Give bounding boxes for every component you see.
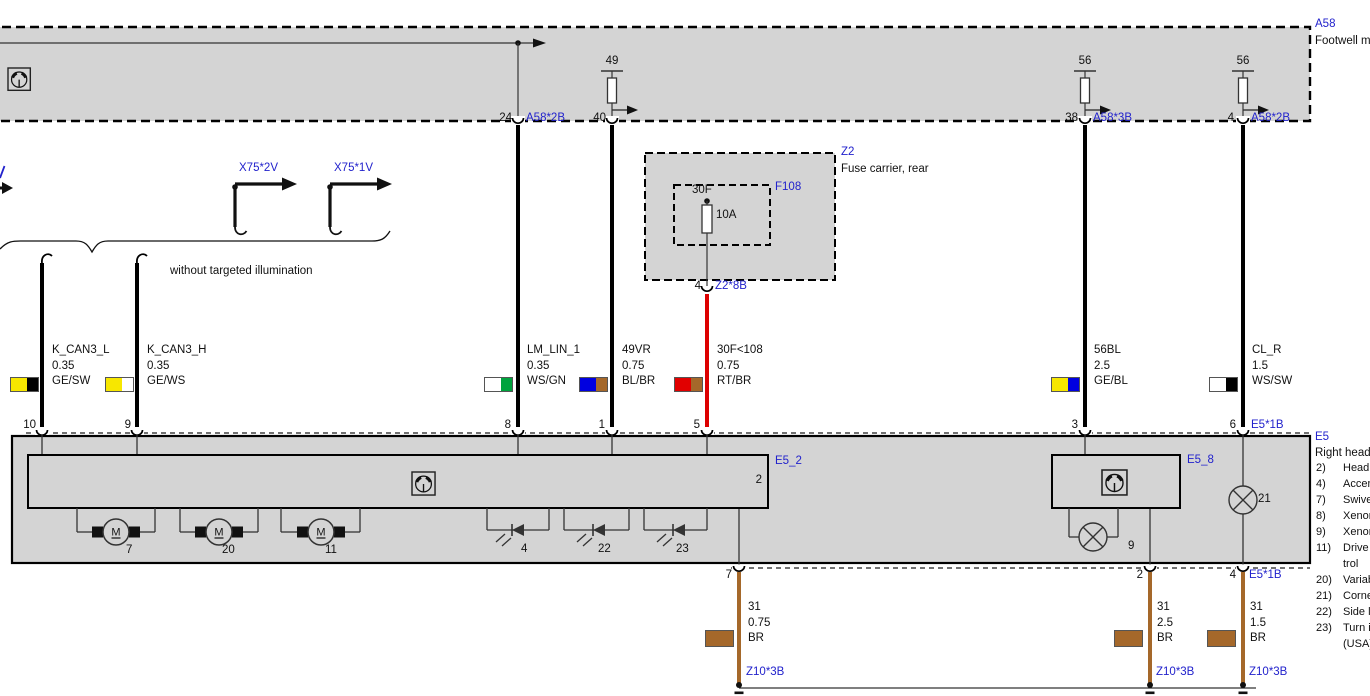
ground-label-3: 311.5BR <box>1250 600 1266 647</box>
z2-fuse-carrier-box <box>645 153 835 280</box>
color-chip-br-1 <box>705 630 734 647</box>
e5-legend-item: 4)Accen <box>1316 479 1370 491</box>
a58-pin-24: 24 <box>494 112 512 124</box>
motor-7-label: 7 <box>126 544 132 556</box>
wire-label-lm-lin-1: LM_LIN_10.35WS/GN <box>527 343 580 390</box>
led-4-label: 4 <box>521 543 527 555</box>
motor-11-label: 11 <box>325 544 337 556</box>
e5-legend-item: 2)Headl <box>1316 463 1370 475</box>
wire-label-k-can3-h: K_CAN3_H0.35GE/WS <box>147 343 206 390</box>
led-22-label: 22 <box>598 543 611 555</box>
e5-legend-item: 9)Xenon <box>1316 527 1370 539</box>
ground-stud-3: Z10*3B <box>1249 666 1287 678</box>
e5-name-label: Right head <box>1315 447 1370 459</box>
e5-2-pin-2: 2 <box>744 474 762 486</box>
color-chip-br-2 <box>1114 630 1143 647</box>
fuse-terminal-30f: 30F <box>692 184 712 196</box>
grouping-brace <box>0 231 390 252</box>
e5-pin-5: 5 <box>682 419 700 431</box>
lamp-symbol-9 <box>1079 523 1107 551</box>
a58-pin-38-connector: A58*3B <box>1093 112 1132 124</box>
terminal-56-right-label: 56 <box>1229 55 1257 67</box>
wire-k-can3-h <box>137 254 147 430</box>
e5-8-box <box>1052 455 1180 508</box>
color-chip-ws-gn <box>484 377 513 392</box>
e5-bottom-connector-label: E5*1B <box>1249 569 1282 581</box>
e5-legend-item: 20)Variab <box>1316 575 1370 587</box>
e5-legend-item: 23)Turn i <box>1316 623 1370 635</box>
color-chip-ge-bl <box>1051 377 1080 392</box>
ground-label-2: 312.5BR <box>1157 600 1173 647</box>
e5-legend-item: 21)Corne <box>1316 591 1370 603</box>
e5-legend-item: (USA) <box>1316 639 1370 651</box>
z2-pin-connector: Z2*8B <box>715 280 747 292</box>
e5-legend-item: 22)Side li <box>1316 607 1370 619</box>
ground-label-1: 310.75BR <box>748 600 770 647</box>
ground-stud-1: Z10*3B <box>746 666 784 678</box>
e5-2-id-label: E5_2 <box>775 455 802 467</box>
e5-pin-1: 1 <box>587 419 605 431</box>
e5-legend-item: trol <box>1316 559 1370 571</box>
terminal-49-label: 49 <box>598 55 626 67</box>
wire-label-cl-r: CL_R1.5WS/SW <box>1252 343 1292 390</box>
z2-id-label: Z2 <box>841 146 854 158</box>
e5-2-box <box>28 455 768 508</box>
e5-pin-10: 10 <box>18 419 36 431</box>
terminal-56-left-label: 56 <box>1071 55 1099 67</box>
z2-name-label: Fuse carrier, rear <box>841 163 929 175</box>
wire-label-30f108: 30F<1080.75RT/BR <box>717 343 763 390</box>
e5-legend-item: 11)Drive u <box>1316 543 1370 555</box>
left-branch-arrow <box>0 166 13 194</box>
x75-1v-branch-arrow <box>327 178 392 235</box>
a58-pin-4: 4 <box>1216 112 1234 124</box>
a58-id-label: A58 <box>1315 18 1335 30</box>
ground-stud-2: Z10*3B <box>1156 666 1194 678</box>
led-23-label: 23 <box>676 543 689 555</box>
e5-pin-4-bottom: 4 <box>1218 569 1236 581</box>
wire-k-can3-l <box>42 254 52 430</box>
wire-label-k-can3-l: K_CAN3_L0.35GE/SW <box>52 343 110 390</box>
color-chip-rt-br <box>674 377 703 392</box>
e5-pin-9: 9 <box>113 419 131 431</box>
e5-id-label: E5 <box>1315 431 1329 443</box>
wire-label-49vr: 49VR0.75BL/BR <box>622 343 655 390</box>
color-chip-ge-sw <box>10 377 39 392</box>
lamp-9-label: 9 <box>1128 540 1134 552</box>
e5-pin-2-bottom: 2 <box>1125 569 1143 581</box>
e5-pin-6: 6 <box>1218 419 1236 431</box>
a58-name-label: Footwell m <box>1315 35 1370 47</box>
f108-label: F108 <box>775 181 801 193</box>
color-chip-br-3 <box>1207 630 1236 647</box>
x75-1v-label: X75*1V <box>334 162 373 174</box>
motor-20-label: 20 <box>222 544 235 556</box>
e5-pin-3: 3 <box>1060 419 1078 431</box>
lamp-symbol-21 <box>1229 486 1257 514</box>
e5-8-id-label: E5_8 <box>1187 454 1214 466</box>
z2-pin-connector <box>702 286 713 291</box>
x75-2v-label: X75*2V <box>239 162 278 174</box>
wiring-diagram-page: M <box>0 0 1370 696</box>
a58-module-box <box>0 27 1310 121</box>
color-chip-bl-br <box>579 377 608 392</box>
a58-pin-38: 38 <box>1060 112 1078 124</box>
e5-top-connector-label: E5*1B <box>1251 419 1284 431</box>
e5-pin-8: 8 <box>493 419 511 431</box>
lamp-21-label: 21 <box>1258 493 1271 505</box>
without-illumination-note: without targeted illumination <box>170 265 313 277</box>
e5-pin-7-bottom: 7 <box>714 569 732 581</box>
ground-bus-z10-3b <box>735 682 1257 694</box>
a58-pin-24-connector: A58*2B <box>526 112 565 124</box>
color-chip-ws-sw <box>1209 377 1238 392</box>
fuse-rating-10a: 10A <box>716 209 736 221</box>
z2-pin-4: 4 <box>683 280 701 292</box>
color-chip-ge-ws <box>105 377 134 392</box>
e5-legend-item: 7)Swive <box>1316 495 1370 507</box>
a58-pin-40: 40 <box>588 112 606 124</box>
x75-2v-branch-arrow <box>232 178 297 235</box>
a58-pin-4-connector: A58*2B <box>1251 112 1290 124</box>
e5-legend-item: 8)Xenon <box>1316 511 1370 523</box>
wire-label-56bl: 56BL2.5GE/BL <box>1094 343 1128 390</box>
